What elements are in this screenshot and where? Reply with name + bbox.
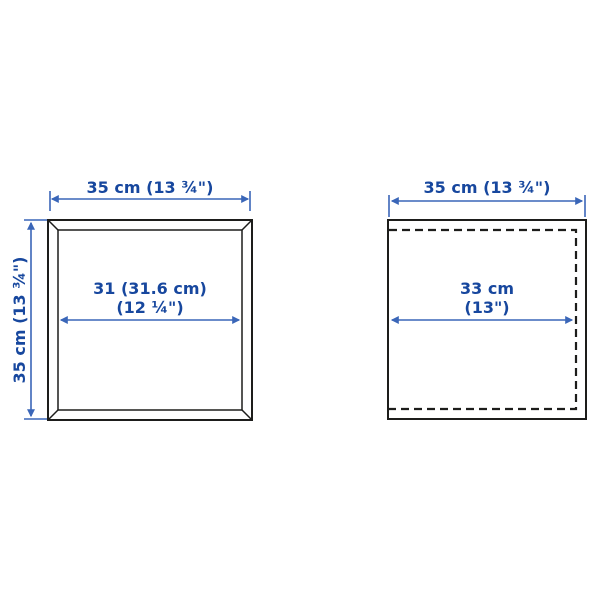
miter-line-top-left [48, 220, 58, 230]
miter-line-bottom-right [242, 410, 252, 420]
miter-line-bottom-left [48, 410, 58, 420]
left-width-label: 35 cm (13 ¾") [87, 178, 214, 197]
dimension-drawing-svg: 35 cm (13 ¾") 35 cm (13 ¾") 31 (31.6 cm)… [0, 0, 600, 600]
left-inner-width-line2: (12 ¼") [116, 298, 183, 317]
left-height-label: 35 cm (13 ¾") [10, 257, 29, 384]
left-inner-width-line1: 31 (31.6 cm) [93, 279, 207, 298]
right-width-label: 35 cm (13 ¾") [424, 178, 551, 197]
right-cabinet-view: 35 cm (13 ¾") 33 cm (13") [388, 178, 586, 419]
left-cabinet-view: 35 cm (13 ¾") 35 cm (13 ¾") 31 (31.6 cm)… [10, 178, 252, 420]
right-inner-width-line2: (13") [464, 298, 509, 317]
product-dimension-diagram: 35 cm (13 ¾") 35 cm (13 ¾") 31 (31.6 cm)… [0, 0, 600, 600]
miter-line-top-right [242, 220, 252, 230]
right-inner-width-line1: 33 cm [460, 279, 514, 298]
